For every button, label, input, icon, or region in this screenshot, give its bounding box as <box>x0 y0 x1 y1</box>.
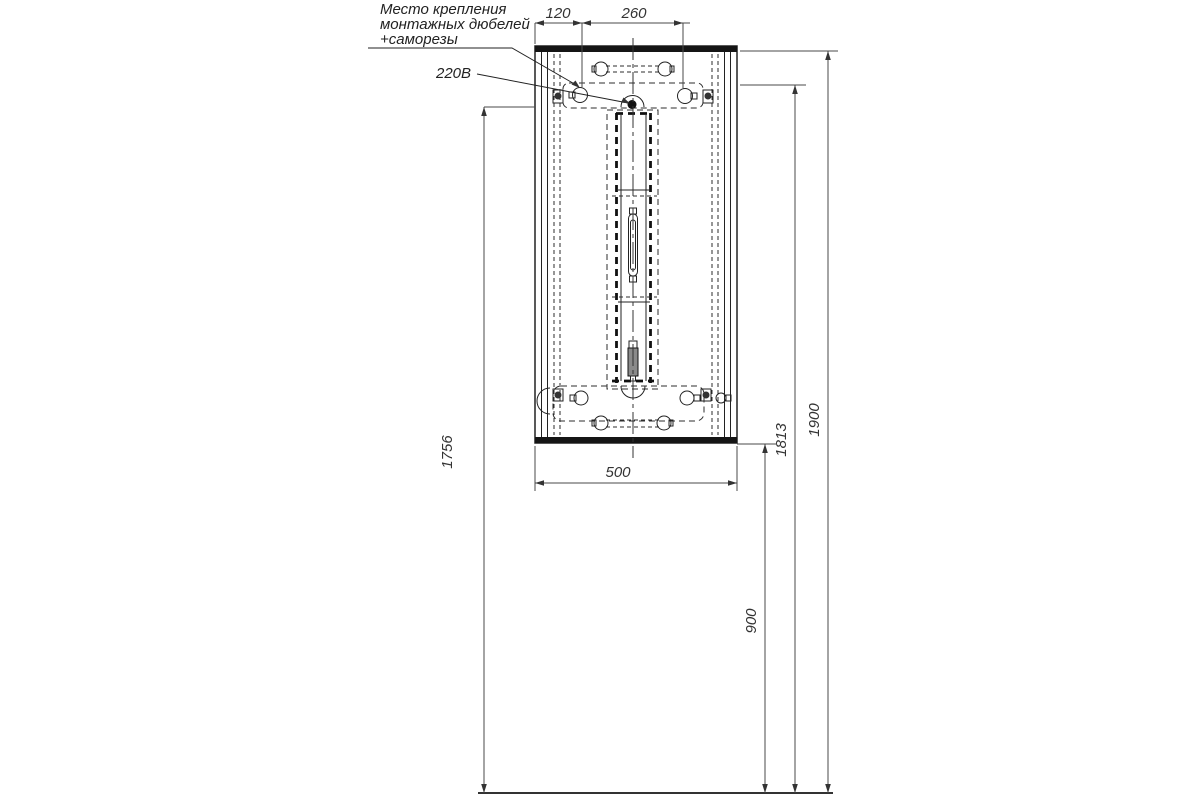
dimension-height-900: 900 <box>737 444 776 793</box>
dim-500-label: 500 <box>605 464 631 481</box>
mounting-diagram: 120 260 500 1756 900 1813 <box>0 0 1200 800</box>
dim-1756-label: 1756 <box>439 435 456 469</box>
dim-260-label: 260 <box>620 5 647 22</box>
cabinet-bottom-panel <box>535 437 737 443</box>
bottom-dowel-hole-right <box>680 391 700 405</box>
power-point-dot <box>628 100 637 109</box>
bottom-keyhole-right <box>701 389 711 401</box>
dim-1813-label: 1813 <box>773 423 790 457</box>
mounting-diagram-page: 120 260 500 1756 900 1813 <box>0 0 1200 800</box>
dimension-width: 500 <box>535 446 737 491</box>
dim-900-label: 900 <box>743 608 760 634</box>
dim-1900-label: 1900 <box>806 403 823 437</box>
top-dowel-hole-right <box>678 89 698 104</box>
power-annotation: 220В <box>435 65 630 104</box>
power-label: 220В <box>435 65 471 82</box>
mounting-note-leader <box>368 48 578 86</box>
cabinet-top-panel <box>535 46 737 52</box>
dimension-height-1756: 1756 <box>439 107 535 793</box>
dim-120-label: 120 <box>545 5 571 22</box>
mounting-note-line3: +саморезы <box>380 31 458 48</box>
bottom-mounting-assembly <box>537 386 731 430</box>
dimension-height-1900: 1900 <box>740 51 838 793</box>
dimension-height-1813: 1813 <box>740 85 806 793</box>
bottom-dowel-hole-left <box>570 391 588 405</box>
left-side-cutout <box>537 388 550 414</box>
center-column <box>607 38 658 458</box>
